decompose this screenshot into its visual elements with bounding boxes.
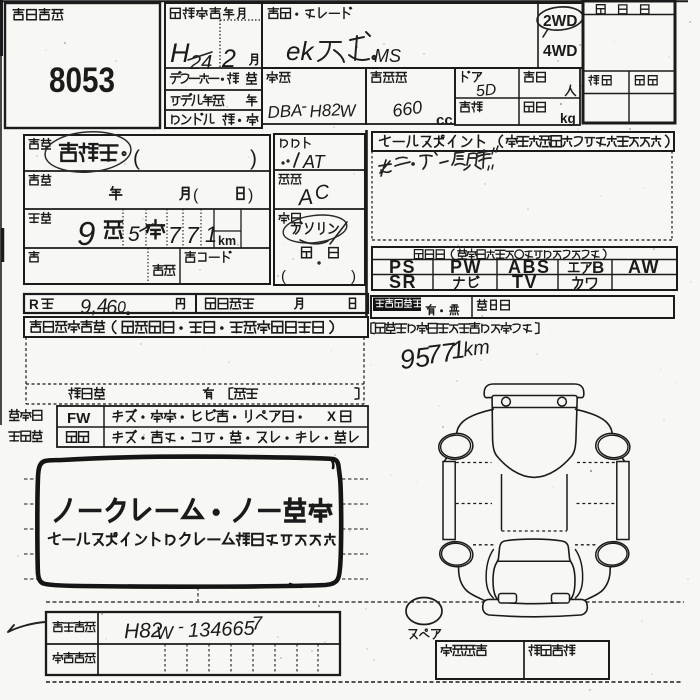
svg-text:0: 0 — [117, 299, 127, 316]
svg-text:): ) — [351, 268, 356, 285]
svg-text:(: ( — [193, 187, 199, 204]
svg-text:9,4: 9,4 — [80, 295, 109, 318]
svg-text:cc: cc — [436, 112, 453, 129]
svg-text:C: C — [314, 181, 331, 204]
svg-text:W: W — [156, 622, 176, 643]
svg-text:X: X — [327, 409, 336, 424]
svg-text:): ) — [248, 187, 253, 204]
svg-text:AT: AT — [302, 152, 327, 172]
svg-text:4WD: 4WD — [543, 43, 577, 60]
svg-text:TV: TV — [512, 272, 538, 292]
svg-text:km: km — [218, 234, 236, 248]
svg-text:SR: SR — [389, 272, 417, 292]
svg-text:PW: PW — [450, 257, 482, 277]
svg-text:DBA: DBA — [267, 101, 303, 122]
svg-text:FW: FW — [67, 410, 91, 427]
svg-text:(: ( — [133, 147, 140, 170]
svg-text:7: 7 — [186, 222, 200, 248]
svg-text:660: 660 — [391, 97, 424, 121]
svg-text:5D: 5D — [475, 81, 498, 100]
svg-text:7: 7 — [168, 222, 182, 248]
svg-text:AW: AW — [628, 257, 660, 277]
svg-text:H: H — [170, 38, 190, 68]
svg-text:5: 5 — [128, 223, 140, 246]
svg-text:R: R — [29, 297, 39, 312]
svg-text:ek: ek — [286, 36, 315, 66]
svg-text:km: km — [462, 336, 491, 361]
svg-text:8053: 8053 — [49, 61, 115, 100]
svg-text:H82: H82 — [309, 100, 342, 121]
svg-text:-: - — [177, 616, 184, 636]
svg-text:B: B — [592, 258, 604, 277]
svg-text:): ) — [250, 147, 257, 170]
svg-text:MS: MS — [374, 46, 401, 66]
svg-text:1: 1 — [205, 222, 217, 247]
svg-text:9: 9 — [77, 215, 95, 252]
svg-text:(: ( — [281, 268, 286, 285]
svg-text:kg: kg — [560, 111, 576, 126]
svg-text:134665: 134665 — [188, 618, 256, 642]
